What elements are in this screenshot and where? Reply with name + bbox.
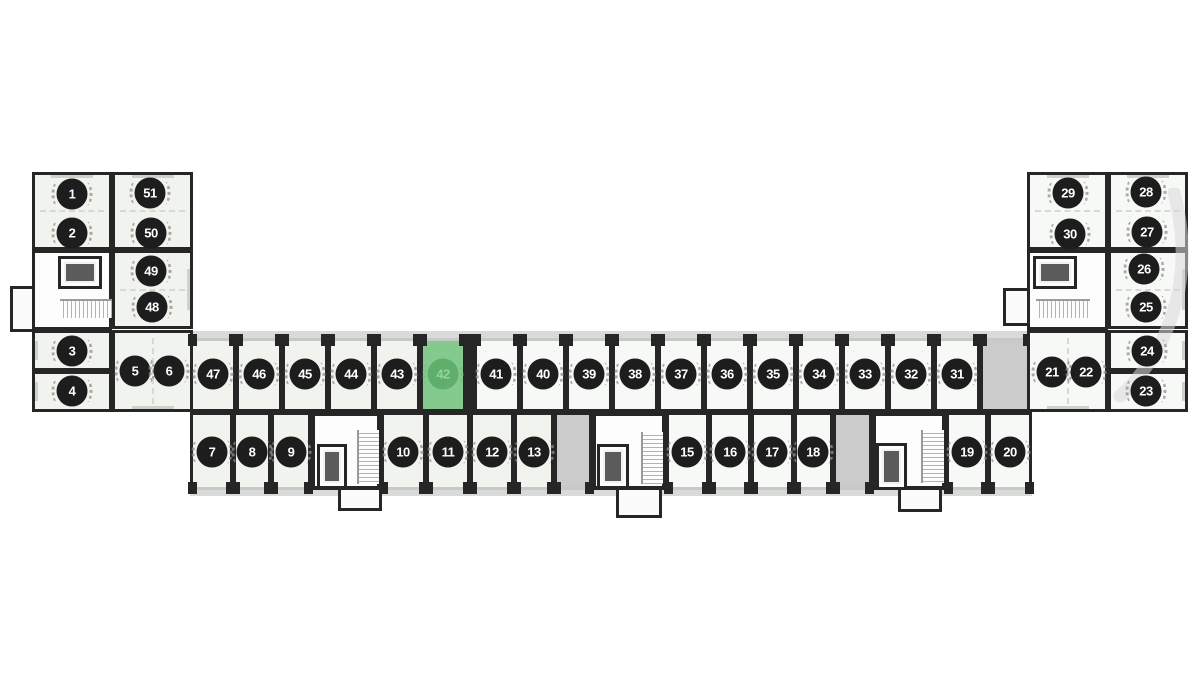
unit-badge-3[interactable]: 3	[57, 336, 88, 367]
elevator-core-right	[876, 443, 907, 490]
unit-badge-51[interactable]: 51	[135, 178, 166, 209]
elevator-car-icon	[1039, 262, 1071, 283]
unit-badge-37[interactable]: 37	[666, 359, 697, 390]
unit-badge-25[interactable]: 25	[1131, 292, 1162, 323]
unit-badge-34[interactable]: 34	[804, 359, 835, 390]
unit-badge-22[interactable]: 22	[1071, 357, 1102, 388]
room-unavailable	[980, 338, 1030, 412]
unit-badge-19[interactable]: 19	[952, 437, 983, 468]
elevator-car-icon	[323, 450, 341, 483]
stairs-right-wing-icon	[1036, 299, 1090, 318]
unit-badge-48[interactable]: 48	[137, 292, 168, 323]
stairs-core-right-icon	[921, 430, 944, 483]
unit-badge-12[interactable]: 12	[477, 437, 508, 468]
unit-badge-35[interactable]: 35	[758, 359, 789, 390]
unit-badge-45[interactable]: 45	[290, 359, 321, 390]
unit-badge-15[interactable]: 15	[672, 437, 703, 468]
stair-landing-middle	[616, 487, 662, 518]
unit-badge-11[interactable]: 11	[433, 437, 464, 468]
unit-badge-28[interactable]: 28	[1131, 177, 1162, 208]
unit-badge-46[interactable]: 46	[244, 359, 275, 390]
unit-badge-31[interactable]: 31	[942, 359, 973, 390]
stairs-left-wing-icon	[60, 299, 112, 318]
unit-badge-9[interactable]: 9	[276, 437, 307, 468]
stairs-core-middle-icon	[641, 432, 663, 484]
elevator-right-wing	[1033, 256, 1077, 289]
unit-divider	[40, 210, 104, 212]
unit-badge-30[interactable]: 30	[1055, 219, 1086, 250]
unit-badge-8[interactable]: 8	[237, 437, 268, 468]
unit-badge-27[interactable]: 27	[1132, 217, 1163, 248]
unit-badge-47[interactable]: 47	[198, 359, 229, 390]
unit-divider	[120, 289, 185, 291]
unit-badge-6[interactable]: 6	[154, 356, 185, 387]
unit-badge-17[interactable]: 17	[757, 437, 788, 468]
stair-landing-right	[898, 487, 942, 512]
stairs-core-left-icon	[357, 430, 379, 484]
unit-badge-2[interactable]: 2	[57, 218, 88, 249]
unit-divider	[1035, 210, 1100, 212]
unit-badge-39[interactable]: 39	[574, 359, 605, 390]
elevator-core-middle	[597, 444, 629, 489]
unit-badge-13[interactable]: 13	[519, 437, 550, 468]
floor-plan: 1234567891011121315161718192021222324252…	[0, 0, 1200, 675]
room-unavailable	[833, 412, 872, 490]
room-unavailable	[554, 412, 592, 490]
unit-badge-49[interactable]: 49	[136, 256, 167, 287]
unit-divider	[120, 210, 185, 212]
unit-badge-10[interactable]: 10	[388, 437, 419, 468]
unit-badge-5[interactable]: 5	[120, 356, 151, 387]
unit-badge-26[interactable]: 26	[1129, 254, 1160, 285]
unit-badge-40[interactable]: 40	[528, 359, 559, 390]
unit-badge-1[interactable]: 1	[57, 179, 88, 210]
unit-badge-7[interactable]: 7	[197, 437, 228, 468]
stair-landing-left	[338, 487, 382, 511]
unit-badge-18[interactable]: 18	[798, 437, 829, 468]
unit-badge-23[interactable]: 23	[1131, 376, 1162, 407]
unit-badge-36[interactable]: 36	[712, 359, 743, 390]
elevator-car-icon	[603, 450, 623, 483]
elevator-left-wing	[58, 256, 102, 289]
unit-badge-38[interactable]: 38	[620, 359, 651, 390]
unit-badge-20[interactable]: 20	[995, 437, 1026, 468]
unit-badge-16[interactable]: 16	[715, 437, 746, 468]
unit-badge-41[interactable]: 41	[481, 359, 512, 390]
unit-badge-44[interactable]: 44	[336, 359, 367, 390]
unit-badge-21[interactable]: 21	[1037, 357, 1068, 388]
unit-badge-29[interactable]: 29	[1053, 178, 1084, 209]
unit-badge-4[interactable]: 4	[57, 376, 88, 407]
unit-badge-33[interactable]: 33	[850, 359, 881, 390]
unit-badge-42[interactable]: 42	[428, 359, 459, 390]
unit-badge-24[interactable]: 24	[1132, 336, 1163, 367]
elevator-car-icon	[64, 262, 96, 283]
elevator-core-left	[317, 444, 347, 489]
elevator-car-icon	[882, 449, 901, 484]
unit-badge-32[interactable]: 32	[896, 359, 927, 390]
unit-badge-50[interactable]: 50	[136, 218, 167, 249]
unit-badge-43[interactable]: 43	[382, 359, 413, 390]
